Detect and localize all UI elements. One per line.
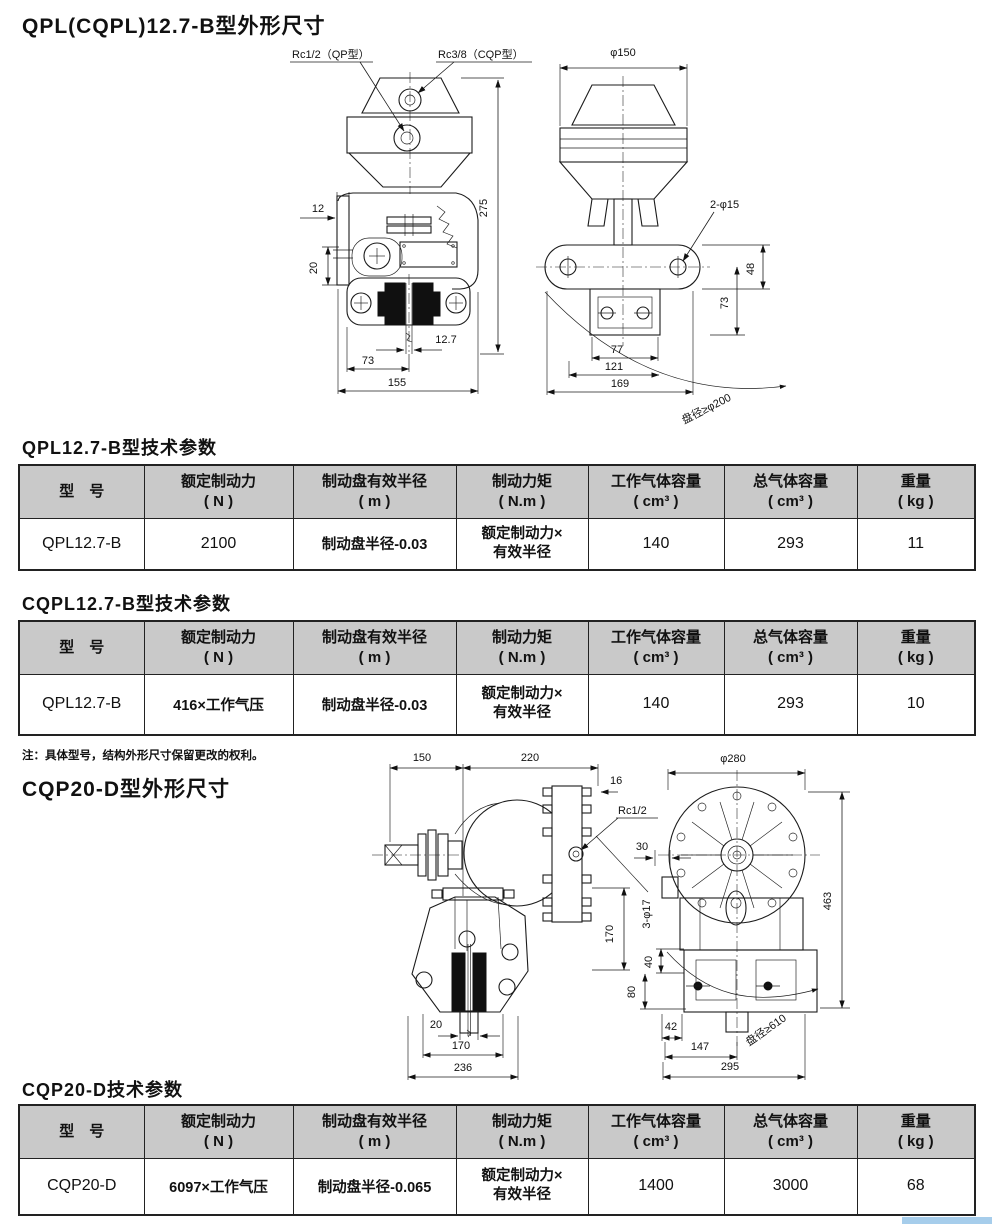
dim-label: 295 <box>721 1061 739 1073</box>
cell-rated-force: 416×工作气压 <box>144 674 293 735</box>
dim-label-port-qp: Rc1/2（QP型） <box>292 47 370 61</box>
header-rated-force: 额定制动力( N ) <box>144 1105 293 1158</box>
dim-label: 170 <box>604 925 616 943</box>
table-title-cqpl127b: CQPL12.7-B型技术参数 <box>22 590 231 616</box>
cell-model: QPL12.7-B <box>19 518 144 570</box>
header-total-volume: 总气体容量( cm³ ) <box>724 621 857 674</box>
header-total-volume: 总气体容量( cm³ ) <box>724 1105 857 1158</box>
dim-label: 20 <box>308 262 320 274</box>
catalog-page: QPL(CQPL)12.7-B型外形尺寸 Rc1/2（QP型） Rc3/8（CQ… <box>0 0 992 1224</box>
dim-label: 40 <box>643 956 655 968</box>
dim-label: 170 <box>452 1040 470 1052</box>
dim-label: 236 <box>454 1062 472 1074</box>
note-text: 注：具体型号，结构外形尺寸保留更改的权利。 <box>22 747 264 763</box>
dim-label: 12.7 <box>435 334 456 346</box>
dim-label: φ150 <box>610 47 636 59</box>
qpl-front-view: Rc1/2（QP型） Rc3/8（CQP型） <box>290 47 532 394</box>
cell-total-volume: 293 <box>724 674 857 735</box>
cqpl127b-spec-table: 型 号 额定制动力( N ) 制动盘有效半径( m ) 制动力矩( N.m ) … <box>18 620 976 736</box>
cell-working-volume: 140 <box>588 518 724 570</box>
dim-label: 73 <box>719 297 731 309</box>
dim-label-port-cqp: Rc3/8（CQP型） <box>438 47 524 61</box>
cell-disc-radius: 制动盘半径-0.065 <box>293 1158 456 1215</box>
header-weight: 重量( kg ) <box>857 1105 975 1158</box>
cell-disc-radius: 制动盘半径-0.03 <box>293 674 456 735</box>
dim-label: 169 <box>611 378 629 390</box>
header-torque: 制动力矩( N.m ) <box>456 621 588 674</box>
header-torque: 制动力矩( N.m ) <box>456 1105 588 1158</box>
header-working-volume: 工作气体容量( cm³ ) <box>588 1105 724 1158</box>
dim-label: 12 <box>312 203 324 215</box>
dim-label: 2-φ15 <box>710 199 739 211</box>
qpl-outline-drawing: Rc1/2（QP型） Rc3/8（CQP型） <box>240 36 950 448</box>
cell-weight: 11 <box>857 518 975 570</box>
dim-label: 275 <box>478 199 490 217</box>
header-disc-radius: 制动盘有效半径( m ) <box>293 1105 456 1158</box>
header-disc-radius: 制动盘有效半径( m ) <box>293 465 456 518</box>
cell-total-volume: 293 <box>724 518 857 570</box>
dim-label: 150 <box>413 752 431 764</box>
cell-torque: 额定制动力×有效半径 <box>456 1158 588 1215</box>
cqp20d-outline-drawing: 150 220 16 Rc1/2 <box>360 746 992 1098</box>
dim-label: φ280 <box>720 753 746 765</box>
cqp20d-spec-table: 型 号 额定制动力( N ) 制动盘有效半径( m ) 制动力矩( N.m ) … <box>18 1104 976 1216</box>
section-title-cqp20d: CQP20-D型外形尺寸 <box>22 773 230 803</box>
header-disc-radius: 制动盘有效半径( m ) <box>293 621 456 674</box>
dim-label: 30 <box>636 841 648 853</box>
dim-label: 48 <box>745 263 757 275</box>
header-model: 型 号 <box>19 621 144 674</box>
qpl-side-view: φ150 2-φ15 <box>536 47 786 427</box>
cell-weight: 10 <box>857 674 975 735</box>
cell-total-volume: 3000 <box>724 1158 857 1215</box>
cell-torque: 额定制动力×有效半径 <box>456 674 588 735</box>
header-total-volume: 总气体容量( cm³ ) <box>724 465 857 518</box>
cell-weight: 68 <box>857 1158 975 1215</box>
dim-label: 121 <box>605 361 623 373</box>
header-model: 型 号 <box>19 1105 144 1158</box>
header-working-volume: 工作气体容量( cm³ ) <box>588 465 724 518</box>
dim-label: Rc1/2 <box>618 805 647 817</box>
cell-model: CQP20-D <box>19 1158 144 1215</box>
dim-label-disc: 盘径≥φ200 <box>679 390 733 427</box>
header-working-volume: 工作气体容量( cm³ ) <box>588 621 724 674</box>
header-model: 型 号 <box>19 465 144 518</box>
cell-rated-force: 6097×工作气压 <box>144 1158 293 1215</box>
dim-label: 147 <box>691 1041 709 1053</box>
header-rated-force: 额定制动力( N ) <box>144 621 293 674</box>
cqp20d-front-view: φ280 <box>626 753 850 1080</box>
qpl127b-spec-table: 型 号 额定制动力( N ) 制动盘有效半径( m ) 制动力矩( N.m ) … <box>18 464 976 571</box>
accent-bar <box>902 1217 992 1224</box>
cell-rated-force: 2100 <box>144 518 293 570</box>
dim-label: 73 <box>362 355 374 367</box>
header-torque: 制动力矩( N.m ) <box>456 465 588 518</box>
dim-label: 3-φ17 <box>641 899 653 928</box>
cell-working-volume: 1400 <box>588 1158 724 1215</box>
cell-model: QPL12.7-B <box>19 674 144 735</box>
dim-label: 42 <box>665 1021 677 1033</box>
cell-torque: 额定制动力×有效半径 <box>456 518 588 570</box>
cqp20d-side-view: 150 220 16 Rc1/2 <box>372 752 658 1080</box>
cell-working-volume: 140 <box>588 674 724 735</box>
dim-label: 20 <box>430 1019 442 1031</box>
header-weight: 重量( kg ) <box>857 621 975 674</box>
dim-label-disc: 盘径≥610 <box>743 1011 789 1049</box>
dim-label: 16 <box>610 775 622 787</box>
dim-label: 463 <box>822 892 834 910</box>
header-rated-force: 额定制动力( N ) <box>144 465 293 518</box>
cell-disc-radius: 制动盘半径-0.03 <box>293 518 456 570</box>
table-title-cqp20d: CQP20-D技术参数 <box>22 1076 183 1102</box>
dim-label: 80 <box>626 986 638 998</box>
table-title-qpl127b: QPL12.7-B型技术参数 <box>22 434 217 460</box>
header-weight: 重量( kg ) <box>857 465 975 518</box>
dim-label: 220 <box>521 752 539 764</box>
dim-label: 155 <box>388 377 406 389</box>
